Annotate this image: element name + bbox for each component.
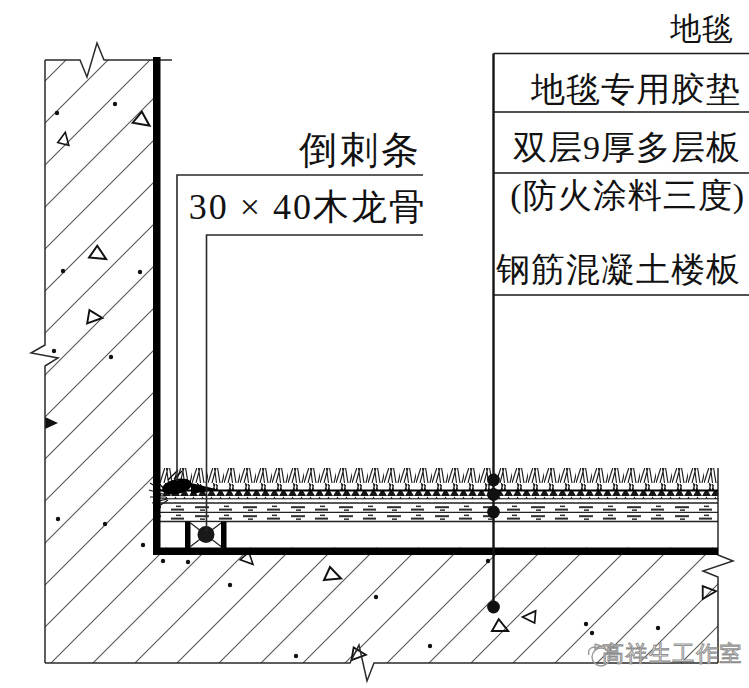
plywood-layers bbox=[160, 503, 718, 522]
wall-face-line bbox=[153, 57, 161, 555]
detail-drawing-canvas: 地毯 地毯专用胶垫 双层9厚多层板 (防火涂料三度) 钢筋混凝土楼板 倒刺条 3… bbox=[0, 0, 749, 688]
label-carpet: 地毯 bbox=[670, 12, 734, 45]
label-concrete-slab: 钢筋混凝土楼板 bbox=[496, 252, 741, 289]
label-tack-strip: 倒刺条 bbox=[299, 130, 422, 171]
carpet-pile-layer bbox=[160, 468, 718, 491]
carpet-pad-layer bbox=[160, 491, 718, 499]
label-plywood: 双层9厚多层板 bbox=[513, 130, 741, 167]
floor-layers bbox=[149, 468, 718, 522]
label-wood-joist: 30 × 40木龙骨 bbox=[189, 188, 427, 227]
slab-top-line bbox=[153, 548, 718, 556]
label-fireproof-coating: (防火涂料三度) bbox=[510, 178, 745, 215]
watermark-text: 高祥生工作室 bbox=[602, 639, 743, 669]
label-carpet-pad: 地毯专用胶垫 bbox=[531, 72, 741, 109]
